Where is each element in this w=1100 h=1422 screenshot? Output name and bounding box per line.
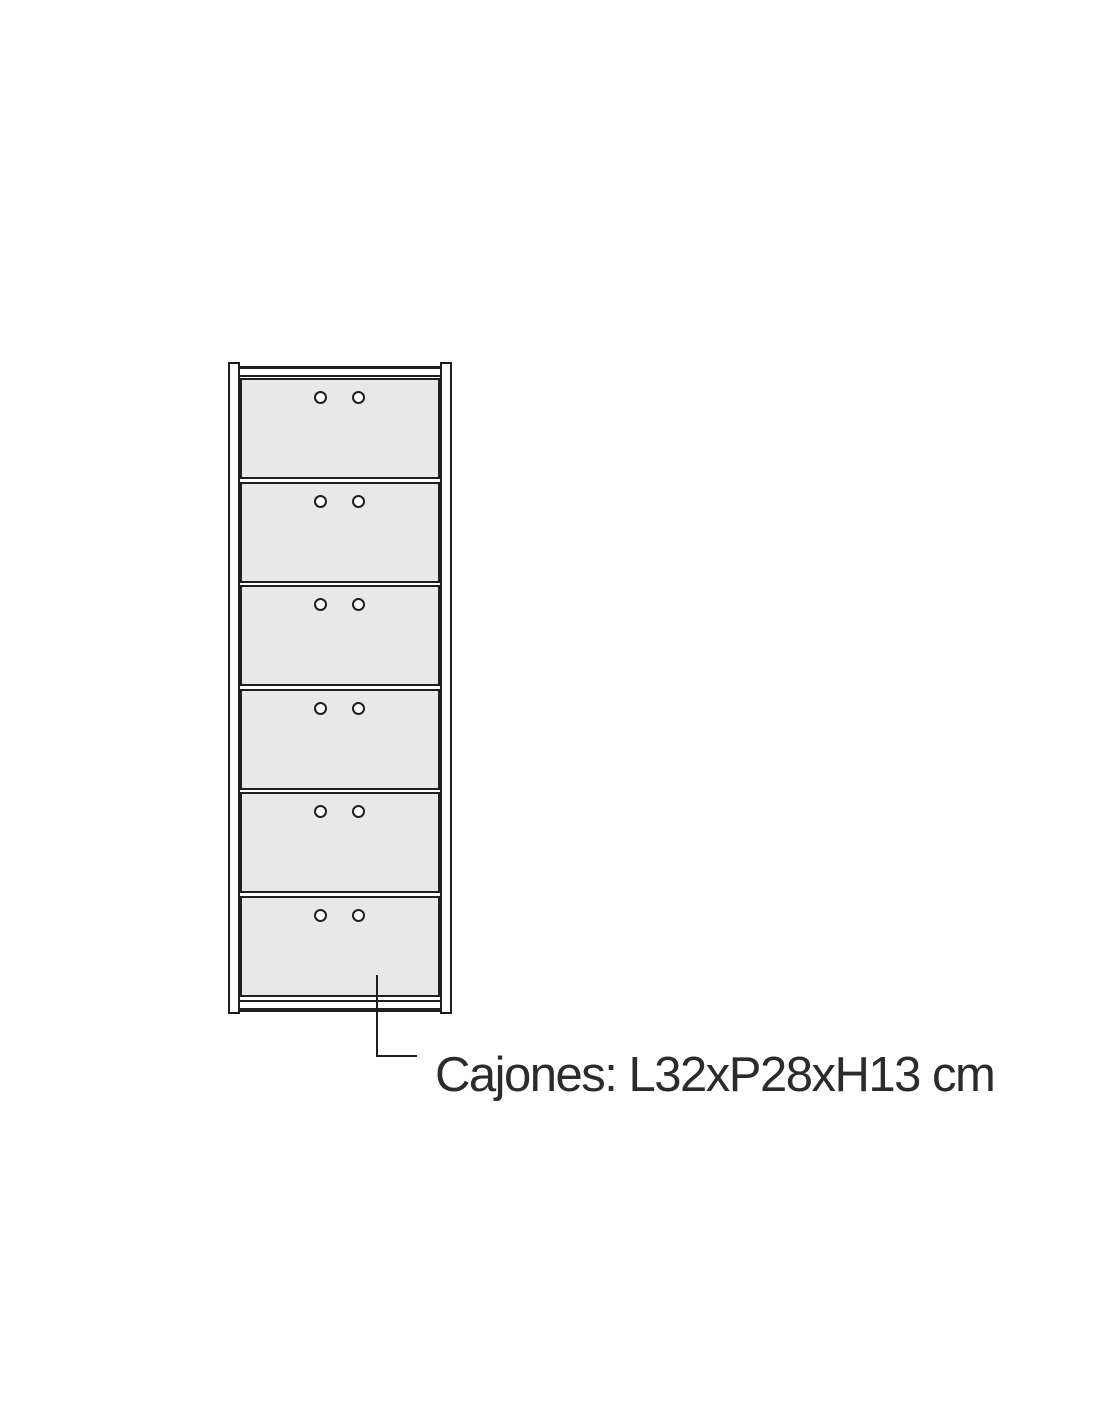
drawer	[240, 896, 440, 997]
drawer-stack	[240, 378, 440, 997]
furniture-diagram-page: Cajones: L32xP28xH13 cm	[0, 0, 1100, 1422]
drawer-knob-icon	[352, 598, 365, 611]
cabinet-left-post	[228, 362, 240, 1014]
drawer-knob-icon	[352, 805, 365, 818]
drawer-knob-icon	[352, 391, 365, 404]
drawer	[240, 792, 440, 893]
cabinet-right-post	[440, 362, 452, 1014]
cabinet-bottom-rail	[240, 1000, 440, 1012]
drawer	[240, 585, 440, 686]
drawer-dimensions-label: Cajones: L32xP28xH13 cm	[435, 1051, 994, 1100]
drawer	[240, 378, 440, 479]
callout-leader-line-vertical-icon	[376, 975, 378, 1057]
drawer-knob-icon	[314, 805, 327, 818]
drawer-cabinet	[228, 362, 452, 1014]
drawer-knob-icon	[352, 495, 365, 508]
drawer-knob-icon	[314, 702, 327, 715]
drawer-knob-icon	[314, 391, 327, 404]
drawer-knob-icon	[352, 702, 365, 715]
drawer	[240, 689, 440, 790]
drawer-knob-icon	[352, 909, 365, 922]
drawer	[240, 482, 440, 583]
cabinet-top-rail	[240, 366, 440, 377]
callout-leader-line-horizontal-icon	[376, 1055, 417, 1057]
drawer-knob-icon	[314, 909, 327, 922]
drawer-knob-icon	[314, 598, 327, 611]
drawer-knob-icon	[314, 495, 327, 508]
